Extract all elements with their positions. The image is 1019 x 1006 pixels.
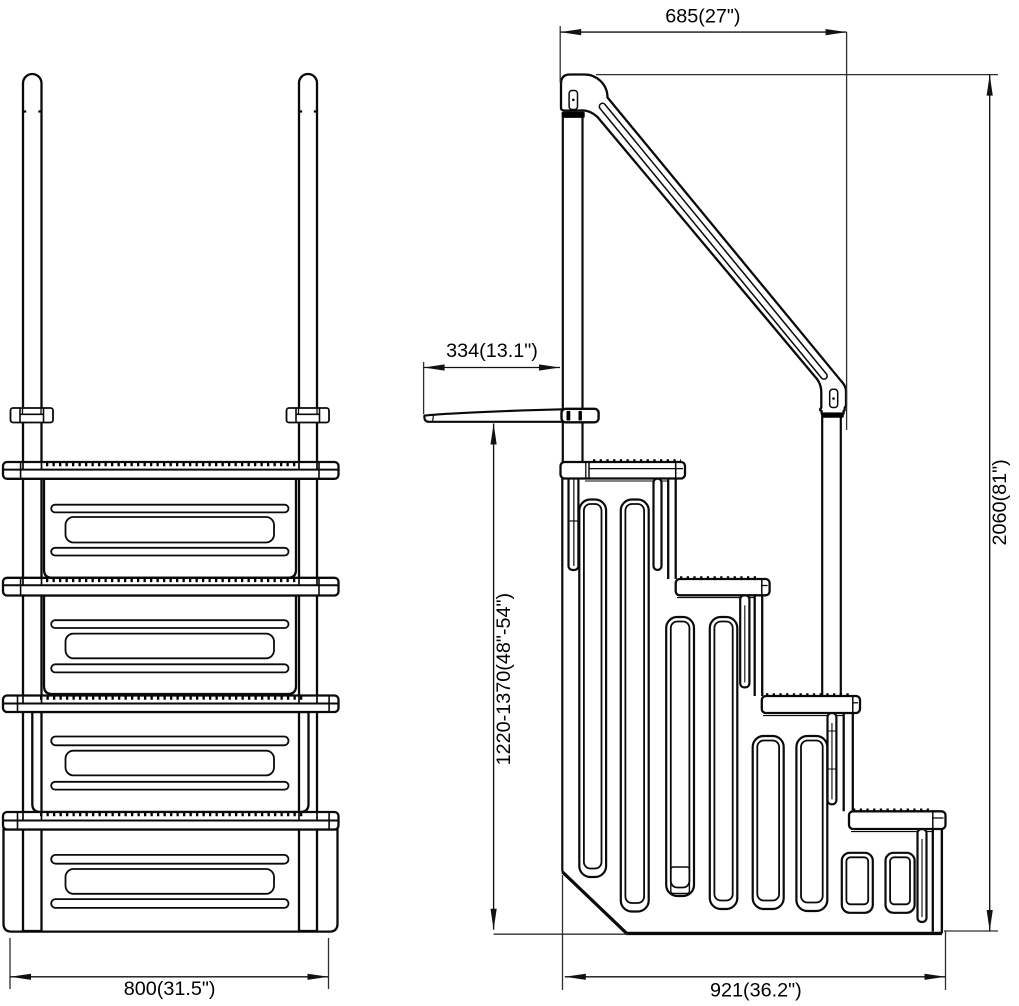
svg-text:334(13.1"): 334(13.1") [446,340,538,362]
svg-text:685(27"): 685(27") [665,6,740,28]
svg-text:1220-1370(48"-54"): 1220-1370(48"-54") [493,593,515,765]
svg-text:921(36.2"): 921(36.2") [710,979,802,1001]
svg-text:800(31.5"): 800(31.5") [124,978,216,1000]
svg-text:2060(81"): 2060(81") [989,459,1011,545]
